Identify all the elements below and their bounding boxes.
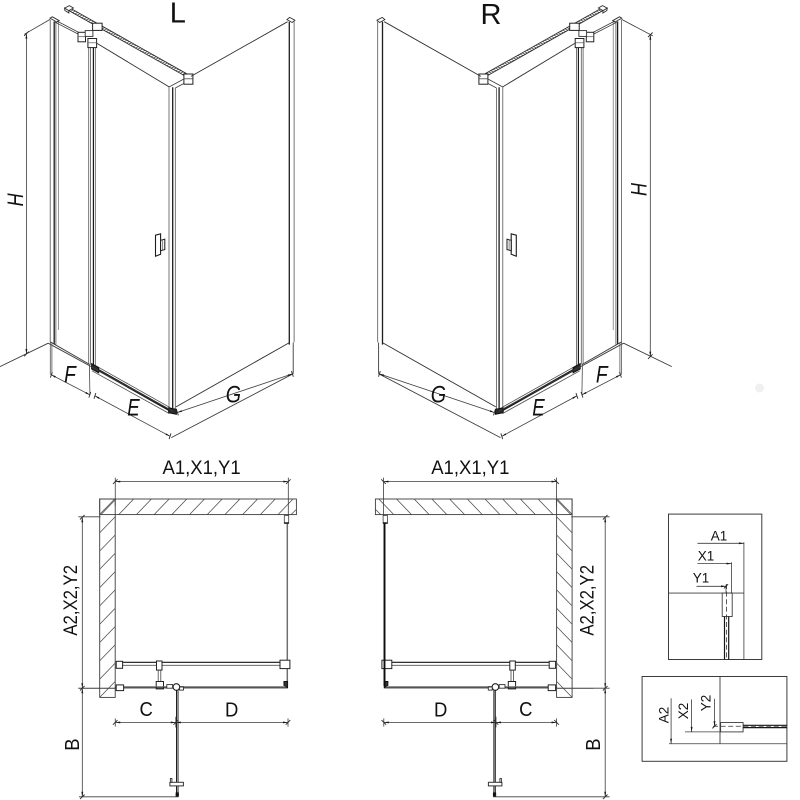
svg-text:C: C (140, 698, 153, 721)
svg-text:A1: A1 (711, 529, 728, 544)
svg-text:H: H (628, 183, 652, 196)
svg-text:E: E (127, 394, 140, 421)
svg-text:Y2: Y2 (699, 695, 714, 712)
svg-text:Y1: Y1 (693, 571, 710, 586)
svg-text:F: F (596, 360, 609, 388)
svg-text:B: B (61, 738, 84, 750)
svg-text:E: E (532, 394, 545, 421)
svg-text:X2: X2 (676, 703, 691, 720)
svg-text:C: C (519, 698, 532, 721)
svg-text:A2,X2,Y2: A2,X2,Y2 (60, 565, 81, 636)
svg-text:A1,X1,Y1: A1,X1,Y1 (163, 458, 241, 480)
svg-text:A2: A2 (656, 707, 671, 724)
svg-text:L: L (170, 0, 186, 30)
svg-text:B: B (582, 738, 605, 750)
svg-text:D: D (225, 699, 238, 722)
svg-text:X1: X1 (698, 548, 715, 563)
svg-text:G: G (431, 381, 446, 408)
svg-text:F: F (64, 360, 77, 388)
svg-text:G: G (226, 381, 241, 408)
svg-text:H: H (4, 193, 28, 206)
svg-text:A2,X2,Y2: A2,X2,Y2 (577, 565, 598, 636)
svg-text:R: R (481, 0, 502, 31)
svg-text:D: D (434, 699, 447, 722)
svg-text:A1,X1,Y1: A1,X1,Y1 (431, 458, 509, 480)
